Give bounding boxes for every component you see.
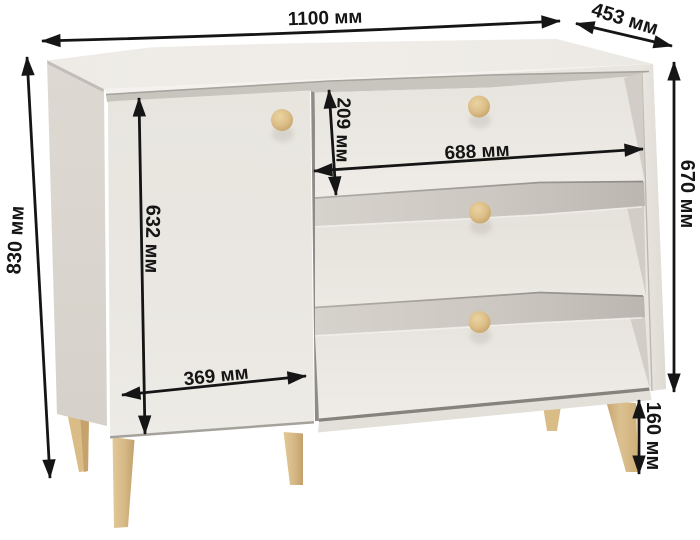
svg-text:1100 мм: 1100 мм bbox=[287, 7, 362, 31]
svg-text:688 мм: 688 мм bbox=[444, 140, 510, 164]
svg-text:632 мм: 632 мм bbox=[140, 205, 163, 274]
svg-text:160 мм: 160 мм bbox=[642, 402, 664, 471]
svg-text:830 мм: 830 мм bbox=[3, 205, 29, 275]
svg-text:209 мм: 209 мм bbox=[331, 97, 353, 162]
svg-text:670 мм: 670 мм bbox=[676, 160, 698, 229]
